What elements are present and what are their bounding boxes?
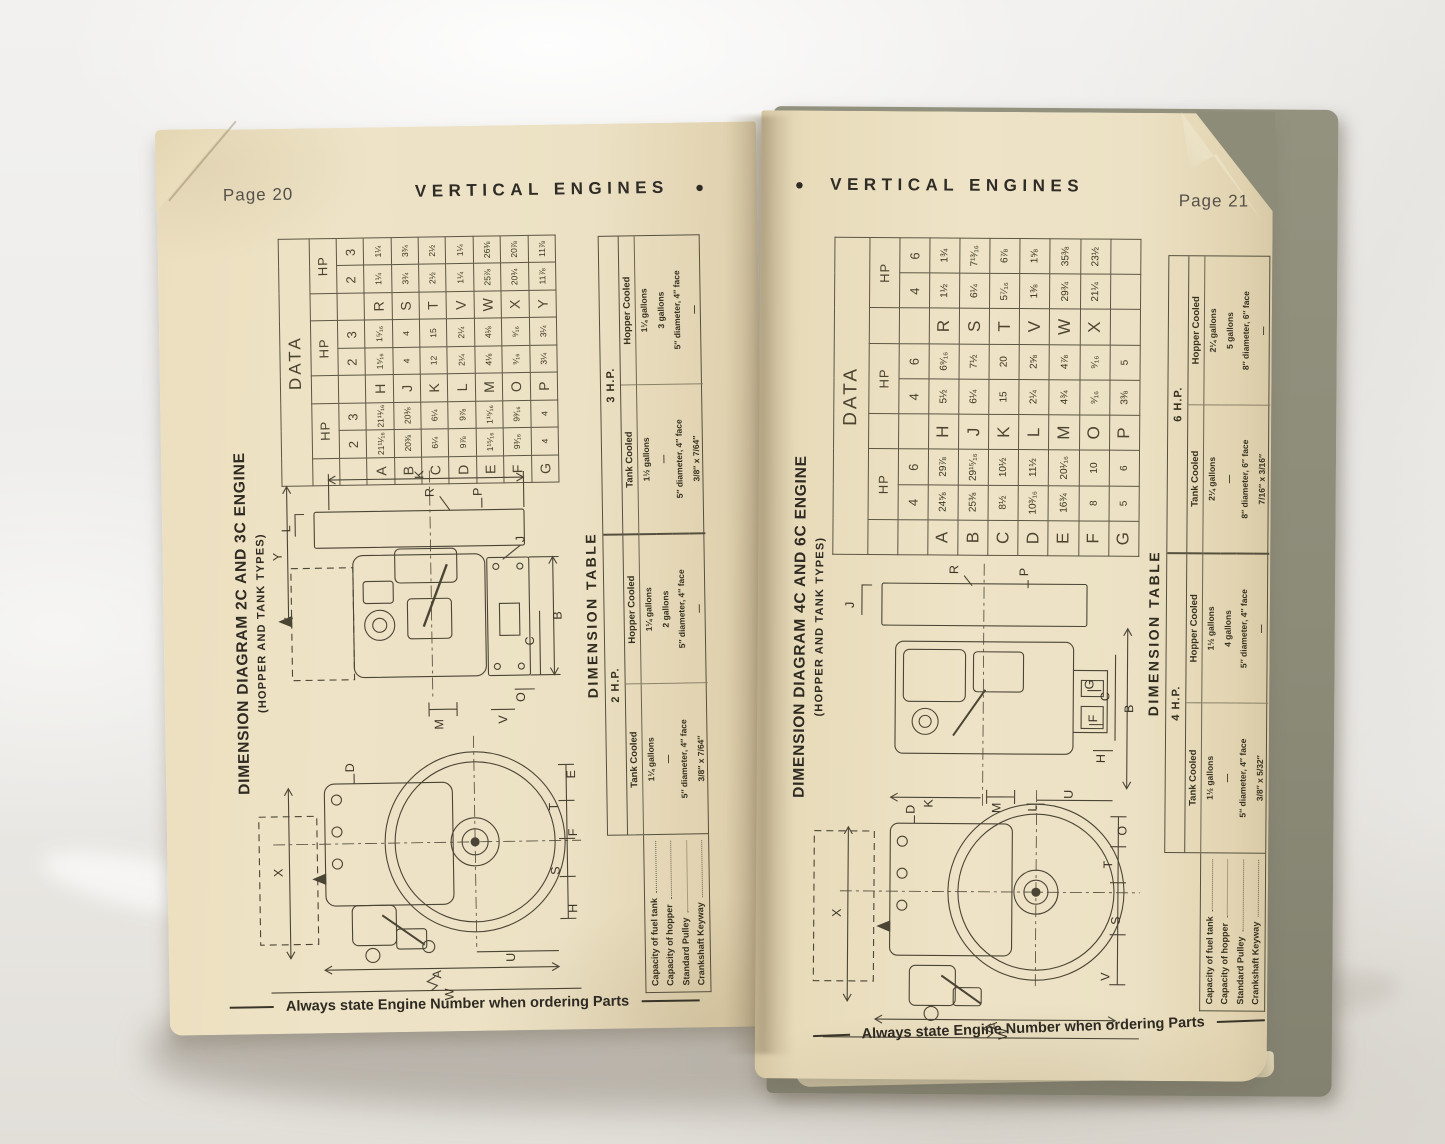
data-table-cell: 11⅞ [528, 263, 556, 291]
data-table-cell: HP [868, 343, 899, 414]
data-table-cell: 1¼ [364, 265, 392, 293]
data-table-cell: 12 [420, 347, 448, 375]
data-table-cell: X [1080, 309, 1110, 344]
dimension-cell: 7/16″ x 3/16″ [1253, 406, 1271, 555]
dimension-row-labels: Capacity of fuel tankCapacity of hopperS… [643, 834, 711, 993]
dimension-cell: 4 H.P. [1165, 554, 1187, 852]
dim-letter: S [549, 866, 563, 875]
data-table-cell: Y [528, 290, 556, 318]
data-table-cell: K [420, 374, 448, 402]
data-table-cell [898, 414, 928, 449]
data-table-cell: 5 [1109, 486, 1140, 521]
left-diagram-subtitle: (HOPPER AND TANK TYPES) [254, 533, 269, 713]
data-table-cell: 2 [338, 348, 366, 376]
data-table-cell: 5½ [929, 379, 959, 414]
dimension-cell: 5″ diameter, 4″ face [1235, 555, 1253, 704]
data-table-cell: M [475, 373, 503, 401]
data-table-cell: 20 [989, 344, 1019, 379]
data-table-cell [1110, 310, 1141, 345]
data-table-cell: 25⅞ [473, 263, 501, 291]
data-table-cell: 9⅞ [448, 401, 476, 429]
data-table-cell: O [502, 373, 530, 401]
dim-letter: H [1094, 754, 1108, 763]
data-table-cell: 9³⁄₁₆ [503, 428, 531, 456]
dimension-cell: — [1254, 257, 1272, 406]
data-table-cell: 3¼ [529, 317, 557, 345]
data-table-cell: L [448, 374, 476, 402]
data-table-cell: 15 [420, 319, 448, 347]
data-table-cell: 4 [530, 400, 558, 428]
data-table-cell: J [959, 414, 989, 449]
data-table-cell: 21¼ [1080, 274, 1110, 309]
left-dimension-table-rotated: DIMENSION TABLECapacity of fuel tankCapa… [578, 234, 720, 994]
dimension-cell: 3/8″ x 7/64″ [691, 684, 710, 834]
data-table-cell: H [366, 375, 394, 403]
data-table-cell: 4⅞ [1049, 344, 1079, 379]
dimension-row-label: Crankshaft Keyway [1250, 858, 1261, 1005]
data-table-cell: 10 [1079, 450, 1109, 485]
data-table-cell [337, 293, 365, 321]
data-table-cell: 2¼ [1019, 379, 1049, 414]
data-table-cell: 6¼ [421, 401, 449, 429]
data-table-cell: HP [309, 238, 337, 293]
left-diagram-title: DIMENSION DIAGRAM 2C AND 3C ENGINE [231, 452, 254, 795]
dimension-cell: — [689, 534, 708, 684]
data-table-cell [869, 308, 899, 343]
data-table-cell: 10½ [988, 450, 1018, 485]
data-table-cell: 3¾ [391, 265, 419, 293]
data-table-cell: M [1049, 415, 1079, 450]
data-table-cell: C [988, 520, 1018, 555]
data-table-cell: 10³⁄₁₆ [1018, 485, 1048, 520]
data-table-cell: DATA [278, 239, 313, 486]
data-table-cell [868, 414, 898, 449]
dim-letter: S [1109, 916, 1123, 924]
dim-letter: G [1082, 680, 1096, 690]
dimension-cell: 8″ diameter, 6″ face [1236, 406, 1254, 555]
dimension-cell: 1½ gallons [1201, 703, 1219, 852]
data-table-cell: 1⅝ [1020, 239, 1050, 274]
data-table-cell: 4⅛ [474, 318, 502, 346]
data-table-cell: 3 [338, 320, 366, 348]
dimension-sections: 4 H.P.6 H.P.Tank CooledHopper CooledTank… [1164, 255, 1270, 854]
data-table-cell: 7¹³⁄₁₆ [960, 238, 990, 273]
data-table-cell: ⁹⁄₁₆ [502, 318, 530, 346]
dimension-cell: Hopper Cooled [1186, 554, 1203, 703]
data-table-cell: P [1109, 415, 1140, 450]
data-table-cell: 6 [900, 238, 930, 273]
data-table-cell [310, 293, 338, 321]
data-table-cell: 20⅜ [394, 402, 422, 430]
data-table-cell: HP [868, 449, 899, 520]
dimension-cell: Hopper Cooled [1188, 256, 1205, 405]
dimension-table: DIMENSION TABLECapacity of fuel tankCapa… [1143, 255, 1272, 1012]
dimension-row-label: Crankshaft Keyway [694, 838, 706, 985]
left-page: Page 20 VERTICAL ENGINES ● DATAHPHPHP232… [156, 121, 770, 1035]
dimension-cell: Tank Cooled [1187, 405, 1204, 554]
dimension-row-label: Capacity of hopper [663, 839, 675, 986]
data-table-cell: 2 [339, 430, 367, 458]
dim-letter: F [1086, 714, 1100, 722]
data-table-cell [898, 519, 928, 554]
data-table-cell: 1¹⁵⁄₁₆ [476, 401, 504, 429]
dim-letter: B [1122, 705, 1136, 713]
dimension-cell: 3/8″ x 7/64″ [686, 385, 705, 535]
dim-letter: D [343, 763, 357, 772]
data-table-cell: 3¼ [529, 345, 557, 373]
data-table-cell: 6¼ [959, 379, 989, 414]
dim-letter: H [566, 904, 580, 913]
dimension-table: DIMENSION TABLECapacity of fuel tankCapa… [578, 234, 720, 994]
data-table-cell: 3⅜ [1109, 380, 1140, 415]
data-table-cell: 6 [899, 343, 929, 378]
dimension-cell: 1½ gallons [1202, 554, 1220, 703]
data-table-cell: W [1050, 309, 1080, 344]
data-table-cell [899, 308, 929, 343]
data-table-cell [867, 519, 897, 554]
left-lower-engine-diagram: X A U W E T F S H D [253, 720, 587, 1003]
data-table-cell: 4 [898, 484, 928, 519]
right-diagram-title: DIMENSION DIAGRAM 4C AND 6C ENGINE [791, 455, 811, 798]
data-table-cell: 2¼ [447, 346, 475, 374]
data-table-cell: 7½ [959, 344, 989, 379]
data-table-cell: S [959, 309, 989, 344]
dim-letter: U [1062, 790, 1076, 799]
data-table-cell: 2⅝ [1019, 344, 1049, 379]
dimension-cell: 6 H.P. [1167, 256, 1189, 554]
data-table-cell: E [1048, 521, 1078, 556]
data-table-cell: ⁹⁄₁₆ [1079, 380, 1109, 415]
data-table-cell: 20¾ [501, 263, 529, 291]
dim-letter: F [566, 828, 580, 836]
data-table-cell: H [928, 414, 958, 449]
data-table-cell [311, 376, 339, 404]
left-data-table-rotated: DATAHPHPHP232323A21¹¹⁄₁₆21¹¹⁄₁₆H1⁵⁄₁₆1⁵⁄… [278, 235, 560, 487]
data-table-cell: 4 [899, 273, 929, 308]
right-upper-engine-diagram: R P J B C G F H K M L [831, 557, 1139, 811]
dim-letter: C [1098, 692, 1112, 701]
header-bullet-icon: ● [795, 176, 804, 193]
dimension-cell: — [1220, 405, 1238, 554]
data-table-cell: ⁹⁄₁₆ [502, 345, 530, 373]
data-table-cell: 6 [1109, 451, 1140, 486]
data-table-cell: 6⁹⁄₁₆ [929, 344, 959, 379]
data-table-cell: 4¾ [1049, 380, 1079, 415]
data-table-cell: 26⅜ [473, 236, 501, 264]
data-table-cell: V [1020, 309, 1050, 344]
dimension-cell: 8″ diameter, 6″ face [1237, 257, 1255, 406]
data-table-cell: 1¾ [930, 238, 960, 273]
data-table-cell: 5⁷⁄₁₆ [990, 274, 1020, 309]
data-table-cell: 3 [339, 403, 367, 431]
data-table-cell: 1⁵⁄₁₆ [365, 347, 393, 375]
data-table-cell: O [1079, 415, 1109, 450]
dim-letter: P [1017, 568, 1031, 576]
left-upper-engine-diagram: K R P L Y B C J O V M [273, 460, 577, 731]
dim-letter: U [504, 953, 518, 962]
dim-letter: T [547, 802, 561, 810]
dimension-sections: 2 H.P.3 H.P.Tank CooledHopper CooledTank… [598, 234, 709, 836]
header-bullet-icon: ● [695, 179, 704, 196]
data-table-cell: 20⅜ [394, 429, 422, 457]
data-table-cell: HP [869, 237, 900, 308]
dim-letter: R [947, 565, 961, 574]
data-table-cell: S [392, 292, 420, 320]
dim-letter: V [1098, 972, 1112, 981]
data-table-cell: F [1078, 521, 1108, 556]
dimension-cell: 5″ diameter, 4″ face [1234, 704, 1252, 853]
data-table-cell: W [474, 291, 502, 319]
dimension-row-labels: Capacity of fuel tankCapacity of hopperS… [1199, 853, 1266, 1011]
data-table-cell: G [1109, 521, 1140, 556]
data-table-cell [1110, 274, 1141, 309]
data-table-cell: 1¼ [446, 236, 474, 264]
dim-letter: D [903, 805, 917, 814]
dim-letter: X [272, 868, 286, 877]
data-table-cell: 6 [898, 449, 928, 484]
data-table-cell: A [928, 520, 958, 555]
data-table-cell: 15 [989, 379, 1019, 414]
dim-letter: C [523, 636, 537, 645]
dimension-cell: 2¼ gallons [1203, 405, 1221, 554]
dimension-row-label: Standard Pulley [1235, 858, 1246, 1005]
data-table-cell: R [364, 293, 392, 321]
dim-letter: Y [271, 552, 285, 561]
data-table-cell: 1¹⁵⁄₁₆ [476, 428, 504, 456]
data-table-cell: 23½ [1080, 239, 1110, 274]
data-table-cell: 1⅜ [1020, 274, 1050, 309]
data-table-cell [338, 375, 366, 403]
right-diagram-subtitle: (HOPPER AND TANK TYPES) [813, 537, 826, 717]
right-page-number: Page 21 [1179, 191, 1249, 211]
data-table-cell: 29⅞ [928, 449, 958, 484]
data-table-cell: 24⅝ [928, 484, 958, 519]
data-table-cell: J [393, 374, 421, 402]
dim-letter: B [551, 611, 565, 620]
data-table-cell: 1½ [929, 273, 959, 308]
data-table-cell: 25⅜ [958, 485, 988, 520]
data-table-cell: 2 [337, 266, 365, 294]
data-table-cell: 5 [1110, 345, 1141, 380]
data-table-cell: D [1018, 520, 1048, 555]
data-table-cell: 29¾ [1050, 274, 1080, 309]
data-table-cell: 11⅞ [528, 235, 556, 263]
data-table-cell: 6¼ [421, 429, 449, 457]
engine-data-table: DATAHPHPHP232323A21¹¹⁄₁₆21¹¹⁄₁₆H1⁵⁄₁₆1⁵⁄… [278, 235, 560, 487]
data-table-cell: 9³⁄₁₆ [503, 400, 531, 428]
dimension-row-label: Capacity of hopper [1219, 857, 1230, 1004]
dimension-cell: 5 gallons [1221, 256, 1239, 405]
data-table-cell: 20⅞ [500, 235, 528, 263]
data-table-cell: R [929, 308, 959, 343]
dim-letter: L [279, 525, 293, 532]
data-table-cell: 4 [531, 427, 559, 455]
left-running-title: VERTICAL ENGINES ● [415, 177, 705, 202]
photo-of-open-manual: Page 20 VERTICAL ENGINES ● DATAHPHPHP232… [0, 0, 1445, 1144]
data-table-cell: 4 [899, 379, 929, 414]
data-table-cell: 4 [392, 320, 420, 348]
right-lower-engine-diagram: X D U O T S V A W [811, 781, 1145, 1043]
data-table-cell: 6⅞ [990, 238, 1020, 273]
data-table-cell: 9⅞ [449, 428, 477, 456]
data-table-cell: HP [311, 403, 339, 458]
data-table-cell: 2½ [418, 237, 446, 265]
data-table-cell: T [989, 309, 1019, 344]
right-dimension-table-rotated: DIMENSION TABLECapacity of fuel tankCapa… [1143, 255, 1272, 1012]
data-table-cell: T [419, 292, 447, 320]
right-running-title: ● VERTICAL ENGINES [795, 174, 1084, 196]
data-table-cell: 20¹⁄₁₆ [1049, 450, 1079, 485]
data-table-cell: 35⅜ [1050, 239, 1080, 274]
data-table-cell: 8½ [988, 485, 1018, 520]
engine-data-table: DATAHPHPHP464646A24⅝29⅞H5½6⁹⁄₁₆R1½1¾B25⅜… [832, 237, 1141, 557]
dim-letter: A [430, 970, 444, 979]
data-table-cell: ⁹⁄₁₆ [1080, 345, 1110, 380]
dim-letter: O [1115, 826, 1129, 836]
dim-letter: J [843, 602, 857, 608]
dimension-cell: — [1252, 555, 1270, 704]
left-page-number: Page 20 [223, 185, 294, 206]
data-table-cell: 2½ [419, 264, 447, 292]
data-table-cell: L [1019, 415, 1049, 450]
data-table-cell: 21¹¹⁄₁₆ [366, 402, 394, 430]
data-table-cell [1110, 239, 1141, 274]
data-table-cell: 21¹¹⁄₁₆ [367, 430, 395, 458]
dimension-cell: — [684, 235, 703, 385]
data-table-cell: 1⁵⁄₁₆ [365, 320, 393, 348]
data-table-cell: 4⅛ [475, 346, 503, 374]
data-table-cell: 8 [1079, 486, 1109, 521]
dim-letter: E [564, 770, 578, 779]
dimension-cell: 3/8″ x 5/32″ [1251, 704, 1269, 853]
data-table-cell: V [446, 291, 474, 319]
data-table-cell: 2¼ [447, 319, 475, 347]
data-table-cell: HP [310, 321, 338, 376]
data-table-cell: B [958, 520, 988, 555]
dim-letter: R [423, 488, 437, 497]
data-table-cell: 3 [336, 238, 364, 266]
dim-letter: P [471, 487, 485, 496]
data-table-cell: X [501, 290, 529, 318]
dimension-row-label: Capacity of fuel tank [648, 839, 660, 986]
data-table-cell: 29¹⁵⁄₁₆ [958, 449, 988, 484]
data-table-cell: 1¼ [364, 238, 392, 266]
dimension-cell: Tank Cooled [1185, 703, 1202, 852]
dimension-cell: 2¼ gallons [1204, 256, 1222, 405]
dimension-cell: — [1218, 703, 1236, 852]
dim-letter: O [514, 692, 528, 702]
data-table-cell: 16¾ [1048, 485, 1078, 520]
data-table-cell: 11½ [1019, 450, 1049, 485]
data-table-cell: 1¼ [446, 264, 474, 292]
right-page: ● VERTICAL ENGINES Page 21 DATAHPHPHP464… [755, 110, 1274, 1082]
data-table-cell: 3¾ [391, 237, 419, 265]
dim-letter: T [1101, 860, 1115, 868]
data-table-cell: 4 [393, 347, 421, 375]
dimension-row-label: Standard Pulley [679, 838, 691, 985]
dim-letter: J [513, 536, 527, 542]
data-table-cell: 6¼ [960, 273, 990, 308]
dimension-row-label: Capacity of fuel tank [1204, 857, 1215, 1004]
dimension-cell: 4 gallons [1219, 554, 1237, 703]
dim-letter: X [830, 908, 844, 917]
data-table-cell: K [989, 414, 1019, 449]
right-data-table-rotated: DATAHPHPHP464646A24⅝29⅞H5½6⁹⁄₁₆R1½1¾B25⅜… [832, 237, 1141, 557]
dim-letter: K [412, 470, 426, 479]
data-table-cell: P [530, 372, 558, 400]
